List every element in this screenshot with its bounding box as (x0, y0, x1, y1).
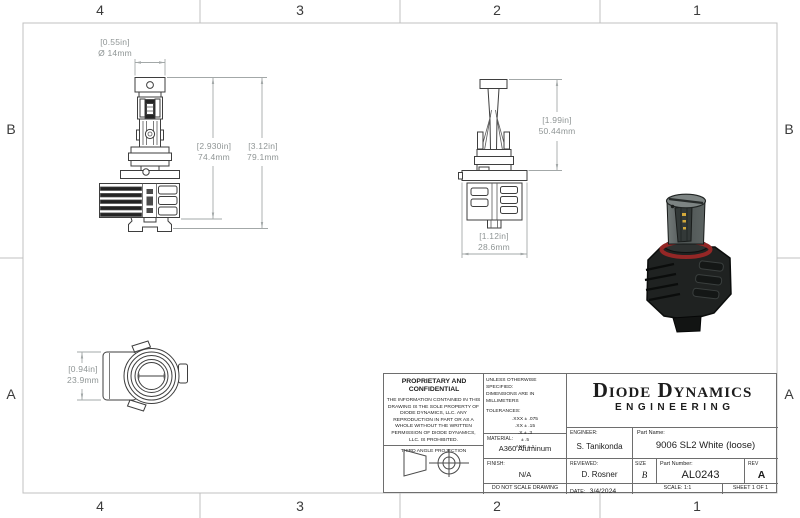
tolerance-line: .XX ± .15 (486, 423, 564, 430)
title-block: PROPRIETARY AND CONFIDENTIAL THE INFORMA… (383, 373, 777, 493)
spec-note-2: DIMENSIONS ARE IN MILLIMETERS (486, 391, 564, 405)
material-cell: MATERIAL: A360 Aluminum (484, 434, 567, 459)
bulb-3d-render (645, 194, 731, 332)
rev-cell: REV A (745, 459, 778, 484)
front-view-drawing (100, 78, 180, 232)
size-label: SIZE (635, 461, 654, 467)
proprietary-cell: PROPRIETARY AND CONFIDENTIAL THE INFORMA… (384, 374, 484, 446)
brand-cell: Diode Dynamics ENGINEERING (567, 374, 778, 428)
material-value: A360 Aluminum (487, 444, 563, 453)
part-number-value: AL0243 (660, 469, 741, 481)
part-number-label: Part Number: (660, 461, 741, 467)
engineer-value: S. Tanikonda (570, 442, 629, 451)
scale-cell: SCALE: 1:1 (633, 484, 723, 494)
tolerance-line: .XXX ± .075 (486, 416, 564, 423)
sheet-value: SHEET 1 OF 1 (733, 485, 768, 491)
part-number-cell: Part Number: AL0243 (657, 459, 745, 484)
dim-side-width: [1.12in] 28.6mm (462, 231, 526, 253)
side-view-drawing (459, 80, 528, 229)
heatsink-logo-mark (147, 189, 154, 213)
render-connector (673, 316, 701, 332)
size-cell: SIZE B (633, 459, 657, 484)
part-name-value: 9006 SL2 White (loose) (637, 440, 774, 451)
proprietary-body: THE INFORMATION CONTAINED IN THIS DRAWIN… (384, 398, 483, 444)
part-name-label: Part Name: (637, 430, 774, 436)
reviewed-label: REVIEWED: (570, 461, 629, 467)
rev-value: A (748, 469, 775, 481)
spec-note-1: UNLESS OTHERWISE SPECIFIED: (486, 377, 564, 391)
date-cell: DATE: 3/4/2024 (567, 484, 633, 494)
dim-top-height: [0.94in] 23.9mm (51, 364, 115, 386)
dim-side-height: [1.99in] 50.44mm (525, 115, 589, 137)
dim-front-total-height: [3.12in] 79.1mm (231, 141, 295, 163)
date-value: 3/4/2024 (590, 488, 616, 495)
reviewed-value: D. Rosner (570, 470, 629, 479)
do-not-scale-note: DO NOT SCALE DRAWING (492, 485, 558, 491)
projection-cell: THIRD ANGLE PROJECTION (384, 446, 484, 494)
tolerances-cell: UNLESS OTHERWISE SPECIFIED: DIMENSIONS A… (484, 374, 567, 434)
brand-subtitle: ENGINEERING (567, 402, 778, 413)
rev-label: REV (748, 461, 775, 467)
finish-cell: FINISH: N/A (484, 459, 567, 484)
sheet-cell: SHEET 1 OF 1 (723, 484, 778, 494)
do-not-scale-cell: DO NOT SCALE DRAWING (484, 484, 567, 494)
tolerances-label: TOLERANCES: (486, 408, 564, 415)
third-angle-projection-symbol (384, 446, 484, 484)
scale-value: SCALE: 1:1 (664, 485, 692, 491)
brand-name: Diode Dynamics (567, 379, 778, 402)
dim-front-diameter: [0.55in] Ø 14mm (83, 37, 147, 59)
engineering-drawing-sheet: { "zones": { "columns": ["4", "3", "2", … (0, 0, 800, 518)
engineer-cell: ENGINEER: S. Tanikonda (567, 428, 633, 459)
finish-label: FINISH: (487, 461, 563, 467)
size-value: B (635, 470, 654, 480)
top-view-drawing (103, 341, 188, 411)
part-name-cell: Part Name: 9006 SL2 White (loose) (633, 428, 778, 459)
reviewed-cell: REVIEWED: D. Rosner (567, 459, 633, 484)
render-led-cutout (675, 206, 692, 242)
date-label: DATE: (570, 489, 585, 495)
finish-value: N/A (487, 470, 563, 479)
engineer-label: ENGINEER: (570, 430, 629, 436)
proprietary-heading: PROPRIETARY AND CONFIDENTIAL (399, 378, 469, 395)
material-label: MATERIAL: (487, 436, 563, 442)
